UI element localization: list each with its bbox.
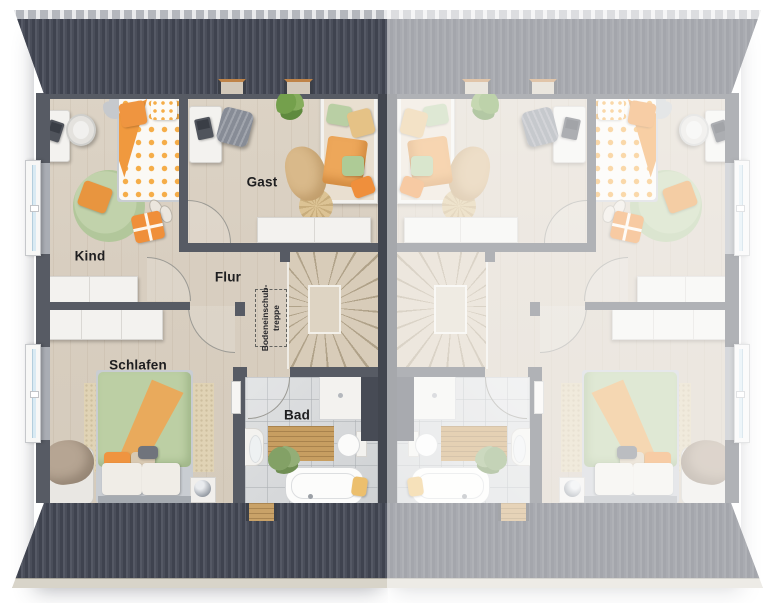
window-1-handle bbox=[30, 205, 39, 212]
wall-bad-top-right bbox=[290, 367, 378, 377]
room-label-flur: Flur bbox=[215, 270, 241, 285]
plant-gast bbox=[276, 90, 304, 120]
wall-kind-schlafen bbox=[37, 302, 190, 310]
wall-stair-stub bbox=[280, 243, 290, 262]
sink-basin bbox=[249, 435, 262, 463]
attic-hatch-line2: treppe bbox=[271, 285, 282, 352]
sphere-lamp bbox=[194, 480, 211, 497]
skylight-1 bbox=[218, 79, 246, 94]
plant-bad bbox=[268, 446, 300, 474]
floorplan-image: Kind Gast Flur Schlafen Bad Bodeneinschu… bbox=[0, 0, 775, 603]
bathtub-inner bbox=[291, 473, 358, 499]
headboard-schlafen bbox=[98, 496, 191, 504]
attic-hatch-box: Bodeneinschub- treppe bbox=[255, 289, 287, 347]
roof-bottom bbox=[0, 503, 388, 588]
shower-drain bbox=[338, 393, 343, 398]
room-label-schlafen: Schlafen bbox=[109, 358, 167, 373]
wardrobe-kind bbox=[40, 276, 138, 303]
unit-left-plan: Kind Gast Flur Schlafen Bad Bodeneinschu… bbox=[0, 0, 388, 603]
roof-ridge-cap bbox=[0, 10, 388, 19]
window-2 bbox=[25, 344, 41, 443]
sideboard-gast bbox=[257, 217, 371, 243]
roof-top bbox=[0, 10, 388, 94]
pillow-white-2 bbox=[142, 463, 180, 495]
wall-stub-schlafen bbox=[235, 302, 245, 316]
window-2-handle bbox=[30, 391, 39, 398]
attic-hatch-line1: Bodeneinschub- bbox=[260, 285, 271, 352]
wardrobe-divider bbox=[89, 277, 90, 302]
roof-top-shingles bbox=[0, 19, 388, 94]
skylight-2 bbox=[284, 79, 313, 94]
wall-kind-gast bbox=[179, 95, 188, 243]
window-1 bbox=[25, 160, 41, 256]
toilet-bowl bbox=[337, 433, 360, 457]
staircase-well bbox=[308, 285, 341, 334]
pillow-white-1 bbox=[102, 463, 142, 495]
shower-tray bbox=[319, 374, 362, 420]
room-label-bad: Bad bbox=[284, 408, 310, 423]
pillow-gray-schlafen bbox=[138, 446, 158, 459]
unit-left: Kind Gast Flur Schlafen Bad Bodeneinschu… bbox=[0, 0, 388, 603]
skylight-bath bbox=[246, 503, 277, 521]
sink bbox=[244, 428, 264, 466]
wall-gast-flur bbox=[179, 243, 378, 252]
daybed-pillow-green2 bbox=[342, 156, 364, 176]
pillow-dotted-kind bbox=[151, 99, 177, 120]
desk-chair-kind bbox=[66, 114, 96, 146]
attic-hatch-label: Bodeneinschub- treppe bbox=[260, 285, 282, 352]
roof-gutter bbox=[0, 578, 388, 588]
wardrobe-divider2 bbox=[81, 309, 82, 339]
towel-yellow bbox=[351, 476, 368, 497]
sideboard-divider bbox=[314, 218, 315, 242]
room-label-kind: Kind bbox=[75, 249, 106, 264]
bath-cabinet-dark bbox=[361, 371, 378, 441]
roof-bottom-shingles bbox=[0, 503, 388, 578]
bath-door-leaf bbox=[231, 381, 241, 414]
tub-faucet bbox=[308, 494, 313, 499]
room-label-gast: Gast bbox=[247, 175, 278, 190]
unit-right-mirrored: Kind Gast Flur Schlafen Bad Bodeneinschu… bbox=[387, 0, 775, 603]
fade-overlay bbox=[387, 0, 775, 603]
wardrobe-schlafen bbox=[40, 308, 163, 340]
pillow-orange-kind bbox=[118, 100, 148, 128]
wardrobe-divider3 bbox=[121, 309, 122, 339]
